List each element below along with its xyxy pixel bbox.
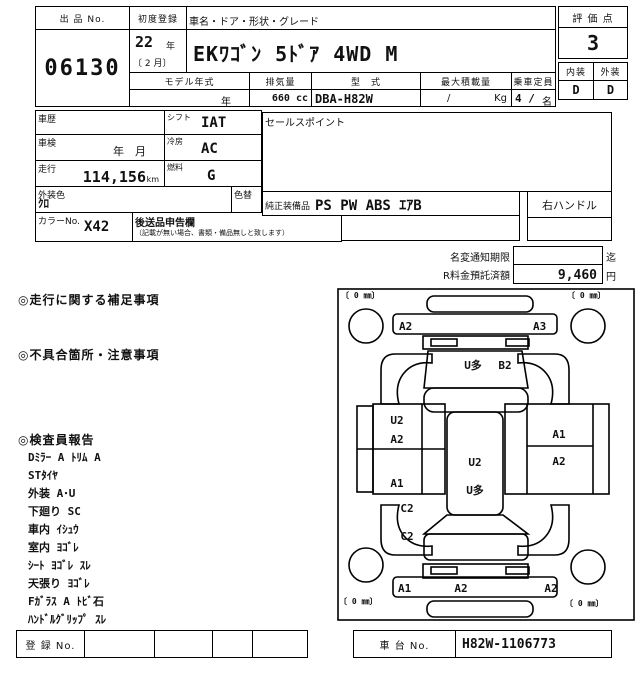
grade-value: 3 bbox=[558, 27, 628, 59]
damage-windshield-left: U多 bbox=[464, 358, 482, 372]
inspector-item: 車内 ｲｼｭｳ bbox=[28, 521, 79, 537]
interior-grade-value: D bbox=[558, 80, 594, 100]
inspection-value: 年 月 bbox=[113, 143, 146, 159]
first-reg-year-unit: 年 bbox=[166, 39, 175, 52]
declaration-empty-cell bbox=[341, 215, 520, 241]
capacity-header: 乗車定員 bbox=[511, 72, 556, 90]
fender-front-right bbox=[518, 354, 569, 404]
damage-rear-quarter-bottom: C2 bbox=[400, 530, 413, 543]
mileage-value: 114,156 bbox=[83, 168, 146, 186]
recycle-deposit-label: R料金預託済額 bbox=[380, 267, 510, 282]
aircon-label: 冷房 bbox=[167, 136, 183, 147]
displacement-value: 660 cc bbox=[272, 93, 308, 104]
first-registration-cell: 22 年 〔 2 月〕 bbox=[129, 29, 187, 73]
front-lamp-right bbox=[506, 339, 529, 346]
lot-no-header: 出 品 No. bbox=[35, 6, 130, 30]
front-bumper bbox=[427, 296, 533, 312]
inspector-item: 室内 ﾖｺﾞﾚ bbox=[28, 539, 79, 555]
color-no-value: X42 bbox=[84, 219, 109, 235]
inspector-item: ﾊﾝﾄﾞﾙｸﾞﾘｯﾌﾟ ｽﾚ bbox=[28, 611, 106, 627]
damage-front-right: A3 bbox=[533, 320, 546, 333]
chassis-no-value: H82W-1106773 bbox=[462, 637, 556, 652]
model-year-header: モデル年式 bbox=[129, 72, 250, 90]
payload-slash: / bbox=[447, 93, 450, 104]
fender-rear-right bbox=[518, 505, 569, 555]
exterior-grade-value: D bbox=[593, 80, 628, 100]
damage-roof-top: U2 bbox=[468, 456, 481, 469]
registration-no-label: 登 録 No. bbox=[16, 630, 85, 658]
color-no-label: カラーNo. bbox=[38, 214, 80, 227]
interior-grade-header: 内装 bbox=[558, 62, 594, 81]
model-code-value: DBA-H82W bbox=[315, 92, 373, 106]
shift-value: IAT bbox=[201, 115, 226, 131]
name-change-deadline-box bbox=[513, 246, 603, 265]
inspector-item: STﾀｲﾔ bbox=[28, 467, 58, 483]
fuel-value: G bbox=[207, 168, 215, 184]
late-items-label: 後送品申告欄 bbox=[135, 214, 195, 229]
mileage-label: 走行 bbox=[38, 162, 56, 175]
damage-rear-quarter-top: C2 bbox=[400, 502, 413, 515]
damage-front-left: A2 bbox=[399, 320, 412, 333]
equipment-label: 純正装備品 bbox=[265, 199, 310, 212]
car-name-value: EKﾜｺﾞﾝ 5ﾄﾞｱ 4WD M bbox=[193, 38, 398, 67]
car-name-header: 車名・ドア・形状・グレード bbox=[189, 13, 319, 28]
aircon-value: AC bbox=[201, 141, 218, 157]
tire-mark-front-left: 〔 0 ㎜〕 bbox=[341, 290, 379, 300]
sales-point-label: セールスポイント bbox=[265, 114, 345, 129]
registration-no-cell bbox=[84, 630, 155, 658]
grade-header: 評 価 点 bbox=[558, 6, 628, 28]
rear-window bbox=[424, 515, 528, 534]
handle-empty-cell bbox=[527, 217, 612, 241]
history-label: 車歴 bbox=[38, 112, 56, 125]
tire-rear-left bbox=[349, 548, 383, 582]
rear-lamp-right bbox=[506, 567, 529, 574]
tire-mark-front-right: 〔 0 ㎜〕 bbox=[567, 290, 605, 300]
exterior-grade-header: 外装 bbox=[593, 62, 628, 81]
rear-hatch bbox=[424, 534, 528, 560]
inspection-label: 車検 bbox=[38, 136, 56, 149]
exterior-color-value: ｸﾛ bbox=[38, 195, 49, 211]
first-registration-header: 初度登録 bbox=[129, 6, 187, 30]
fuel-label: 燃料 bbox=[167, 162, 183, 173]
auction-sheet: 出 品 No. 06130 初度登録 車名・ドア・形状・グレード 22 年 〔 … bbox=[0, 0, 640, 680]
registration-no-cell bbox=[212, 630, 253, 658]
inspector-item: ｼｰﾄ ﾖｺﾞﾚ ｽﾚ bbox=[28, 557, 91, 573]
recycle-deposit-value: 9,460 bbox=[558, 268, 597, 283]
inspector-item: Fｶﾞﾗｽ A ﾄﾋﾞ石 bbox=[28, 593, 104, 609]
damage-left-top1: U2 bbox=[390, 414, 403, 427]
damage-roof-bottom: U多 bbox=[466, 483, 484, 497]
capacity-unit: 名 bbox=[542, 93, 552, 108]
model-year-value: 年 bbox=[221, 93, 231, 108]
payload-header: 最大積載量 bbox=[420, 72, 512, 90]
rear-bumper bbox=[427, 601, 533, 617]
front-grille-band bbox=[423, 336, 528, 349]
late-items-note: （記載が無い場合、書類・備品無しと致します） bbox=[135, 228, 289, 238]
lot-no-value: 06130 bbox=[35, 29, 130, 107]
registration-no-cell bbox=[252, 630, 308, 658]
damage-rear-left: A1 bbox=[398, 582, 412, 595]
car-name-cell: EKﾜｺﾞﾝ 5ﾄﾞｱ 4WD M bbox=[186, 29, 556, 73]
displacement-header: 排気量 bbox=[249, 72, 312, 90]
capacity-value: 4 / bbox=[515, 92, 535, 105]
handle-position-value: 右ハンドル bbox=[527, 191, 612, 218]
damage-right-bottom: A2 bbox=[552, 455, 565, 468]
running-remarks-title: ◎走行に関する補足事項 bbox=[18, 291, 159, 308]
front-lamp-left bbox=[431, 339, 457, 346]
inspector-item: 外装 A･U bbox=[28, 485, 75, 501]
damage-right-top: A1 bbox=[552, 428, 566, 441]
damage-rear-mid: A2 bbox=[454, 582, 467, 595]
name-change-deadline-label: 名変通知期限 bbox=[380, 249, 510, 264]
name-change-suffix: 迄 bbox=[606, 249, 620, 264]
rear-lamp-left bbox=[431, 567, 457, 574]
inspector-item: 天張り ﾖｺﾞﾚ bbox=[28, 575, 90, 591]
damage-windshield-right: B2 bbox=[498, 359, 511, 372]
mileage-unit: km bbox=[147, 175, 159, 184]
recycle-deposit-unit: 円 bbox=[606, 268, 620, 283]
tire-mark-rear-right: 〔 0 ㎜〕 bbox=[565, 598, 603, 608]
inspector-report-title: ◎検査員報告 bbox=[18, 431, 94, 448]
first-reg-year: 22 bbox=[135, 33, 153, 51]
repaint-label: 色替 bbox=[234, 188, 252, 201]
damage-left-top2: A2 bbox=[390, 433, 403, 446]
registration-no-cell bbox=[154, 630, 213, 658]
car-damage-diagram: 〔 0 ㎜〕 〔 0 ㎜〕 〔 0 ㎜〕 〔 0 ㎜〕 A2 A3 U多 B2 … bbox=[337, 288, 635, 621]
shift-label: シフト bbox=[167, 112, 191, 123]
model-code-header: 型 式 bbox=[311, 72, 421, 90]
first-reg-month: 〔 2 月〕 bbox=[133, 56, 171, 69]
defect-remarks-title: ◎不具合箇所・注意事項 bbox=[18, 346, 159, 363]
roof-front-band bbox=[424, 388, 528, 412]
rear-panel-strip bbox=[393, 577, 557, 597]
inspector-item: Dﾐﾗｰ A ﾄﾘﾑ A bbox=[28, 449, 101, 465]
tire-front-right bbox=[571, 309, 605, 343]
chassis-no-label: 車 台 No. bbox=[353, 630, 456, 658]
damage-rear-right: A2 bbox=[544, 582, 557, 595]
inspector-item: 下廻り SC bbox=[28, 503, 81, 519]
tire-rear-right bbox=[571, 550, 605, 584]
rear-lamp-band bbox=[423, 564, 528, 578]
tire-front-left bbox=[349, 309, 383, 343]
equipment-value: PS PW ABS ｴｱB bbox=[315, 195, 422, 215]
payload-unit: Kg bbox=[494, 93, 507, 104]
tire-mark-rear-left: 〔 0 ㎜〕 bbox=[339, 596, 377, 606]
damage-left-bottom: A1 bbox=[390, 477, 404, 490]
